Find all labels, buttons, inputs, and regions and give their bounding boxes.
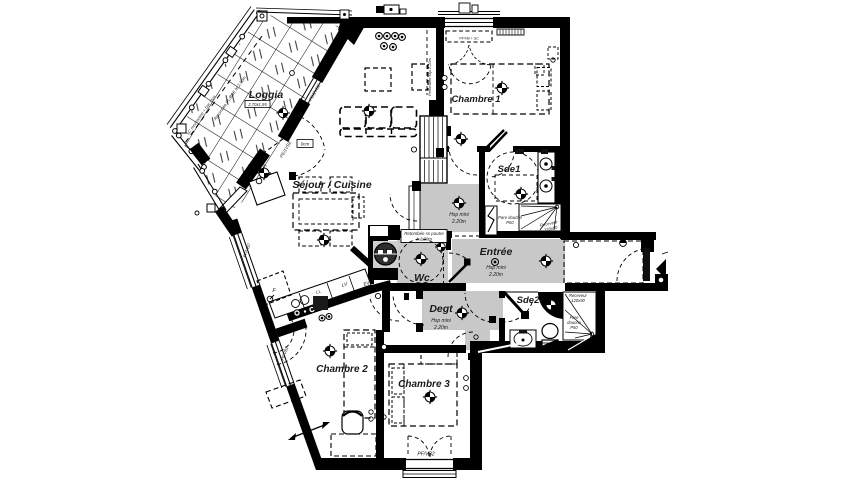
svg-text:Retombée ss poutre: Retombée ss poutre xyxy=(404,231,444,236)
svg-text:Hsp mini: Hsp mini xyxy=(449,212,469,218)
svg-text:0cm: 0cm xyxy=(301,142,310,147)
svg-text:PF/VB2: PF/VB2 xyxy=(417,452,434,458)
svg-text:PF/VB + SC: PF/VB + SC xyxy=(459,37,479,41)
svg-text:Entrée: Entrée xyxy=(480,246,513,258)
svg-text:2,70x1,95: 2,70x1,95 xyxy=(247,102,267,107)
svg-text:Hsp mini: Hsp mini xyxy=(431,318,451,324)
svg-text:2.20m: 2.20m xyxy=(433,325,448,331)
svg-text:Chambre 3: Chambre 3 xyxy=(398,379,450,390)
svg-text:P50: P50 xyxy=(570,325,578,330)
svg-text:2.20m: 2.20m xyxy=(451,219,466,225)
svg-text:120x90: 120x90 xyxy=(571,298,585,303)
svg-text:Sde2: Sde2 xyxy=(517,295,540,306)
svg-text:P60: P60 xyxy=(506,220,514,225)
svg-text:Loggia: Loggia xyxy=(249,89,284,101)
svg-text:Séjour / Cuisine: Séjour / Cuisine xyxy=(292,179,372,191)
svg-text:2.20m: 2.20m xyxy=(488,272,503,278)
svg-text:Sde1: Sde1 xyxy=(498,164,521,175)
svg-text:Chambre 2: Chambre 2 xyxy=(316,364,368,375)
svg-text:Hsp mini: Hsp mini xyxy=(486,265,506,271)
svg-text:Wc: Wc xyxy=(414,272,430,284)
svg-text:Degt: Degt xyxy=(429,303,453,315)
